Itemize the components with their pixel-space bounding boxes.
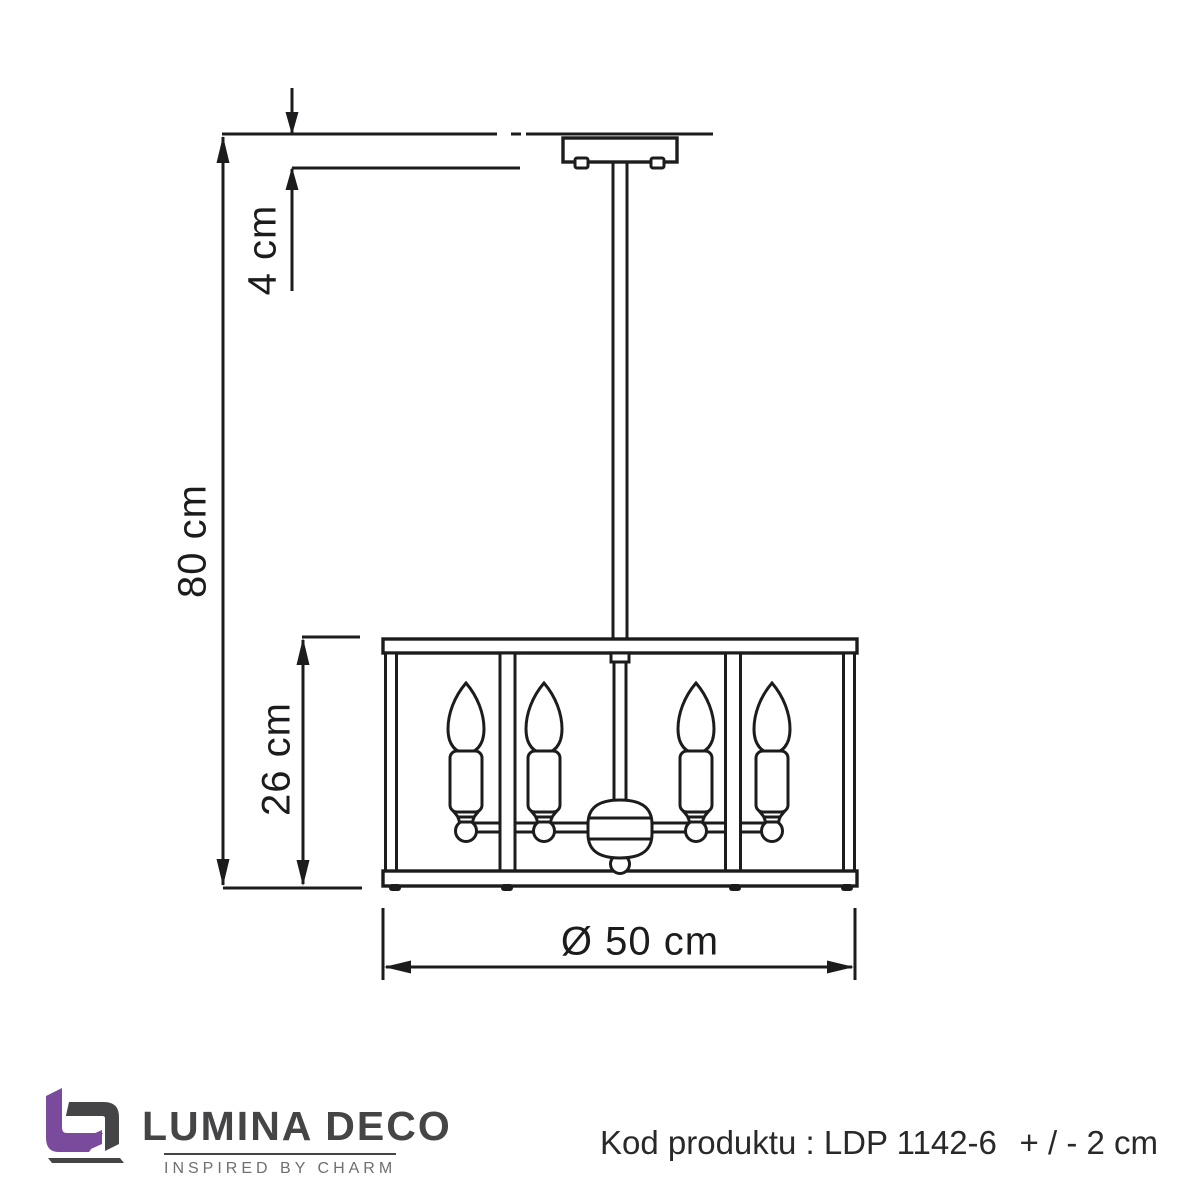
frame-divider-left bbox=[500, 653, 515, 871]
frame-foot bbox=[841, 884, 853, 891]
center-hub bbox=[588, 800, 652, 858]
dimension-80cm bbox=[217, 136, 230, 886]
frame-top-rail bbox=[383, 639, 857, 653]
arrow-down-icon bbox=[217, 859, 230, 886]
canopy-foot-right bbox=[651, 158, 664, 168]
brand-name: LUMINA DECO bbox=[142, 1103, 452, 1150]
dimension-4cm bbox=[286, 88, 299, 291]
product-code: Kod produktu : LDP 1142-6 bbox=[600, 1124, 997, 1162]
frame-foot bbox=[501, 884, 513, 891]
arrow-left-icon bbox=[384, 961, 411, 974]
arrow-down-icon bbox=[286, 112, 299, 135]
lumina-deco-logo-icon bbox=[38, 1084, 134, 1168]
tolerance-note: + / - 2 cm bbox=[1020, 1124, 1158, 1162]
frame-foot bbox=[389, 884, 401, 891]
arrow-down-icon bbox=[297, 860, 310, 886]
frame-left-wall bbox=[386, 653, 397, 871]
arrow-up-icon bbox=[217, 136, 230, 163]
product-info-row: Kod produktu : LDP 1142-6 + / - 2 cm bbox=[600, 1124, 1158, 1162]
candle-bulb-3 bbox=[678, 683, 714, 822]
arrow-up-icon bbox=[297, 638, 310, 665]
center-stem bbox=[614, 662, 626, 802]
bulb-joint bbox=[456, 821, 477, 842]
lamp-fixture bbox=[383, 138, 857, 891]
frame-foot bbox=[729, 884, 741, 891]
label-canopy-height: 4 cm bbox=[241, 205, 285, 296]
bulb-joint bbox=[534, 821, 555, 842]
canopy-foot-left bbox=[575, 158, 588, 168]
candle-bulb-1 bbox=[448, 683, 484, 822]
suspension-rod bbox=[613, 155, 627, 641]
brand-tagline: INSPIRED BY CHARM bbox=[164, 1153, 396, 1178]
brand-block: LUMINA DECO INSPIRED BY CHARM bbox=[142, 1103, 452, 1178]
center-hub-assembly bbox=[588, 653, 652, 874]
frame-right-wall bbox=[844, 653, 855, 871]
candle-bulb-4 bbox=[754, 683, 790, 822]
logo-underline bbox=[48, 1158, 124, 1163]
label-shade-height: 26 cm bbox=[255, 702, 299, 816]
label-total-height: 80 cm bbox=[171, 484, 215, 598]
candle-bulb-2 bbox=[526, 683, 562, 822]
lamp-dimension-drawing: 4 cm 80 cm 26 cm Ø 50 cm bbox=[0, 0, 1200, 1200]
bulb-joint bbox=[762, 821, 783, 842]
frame-divider-right bbox=[726, 653, 741, 871]
label-diameter: Ø 50 cm bbox=[561, 920, 719, 964]
arrow-right-icon bbox=[827, 961, 854, 974]
dimension-lines bbox=[217, 88, 856, 980]
bulb-joint bbox=[686, 821, 707, 842]
